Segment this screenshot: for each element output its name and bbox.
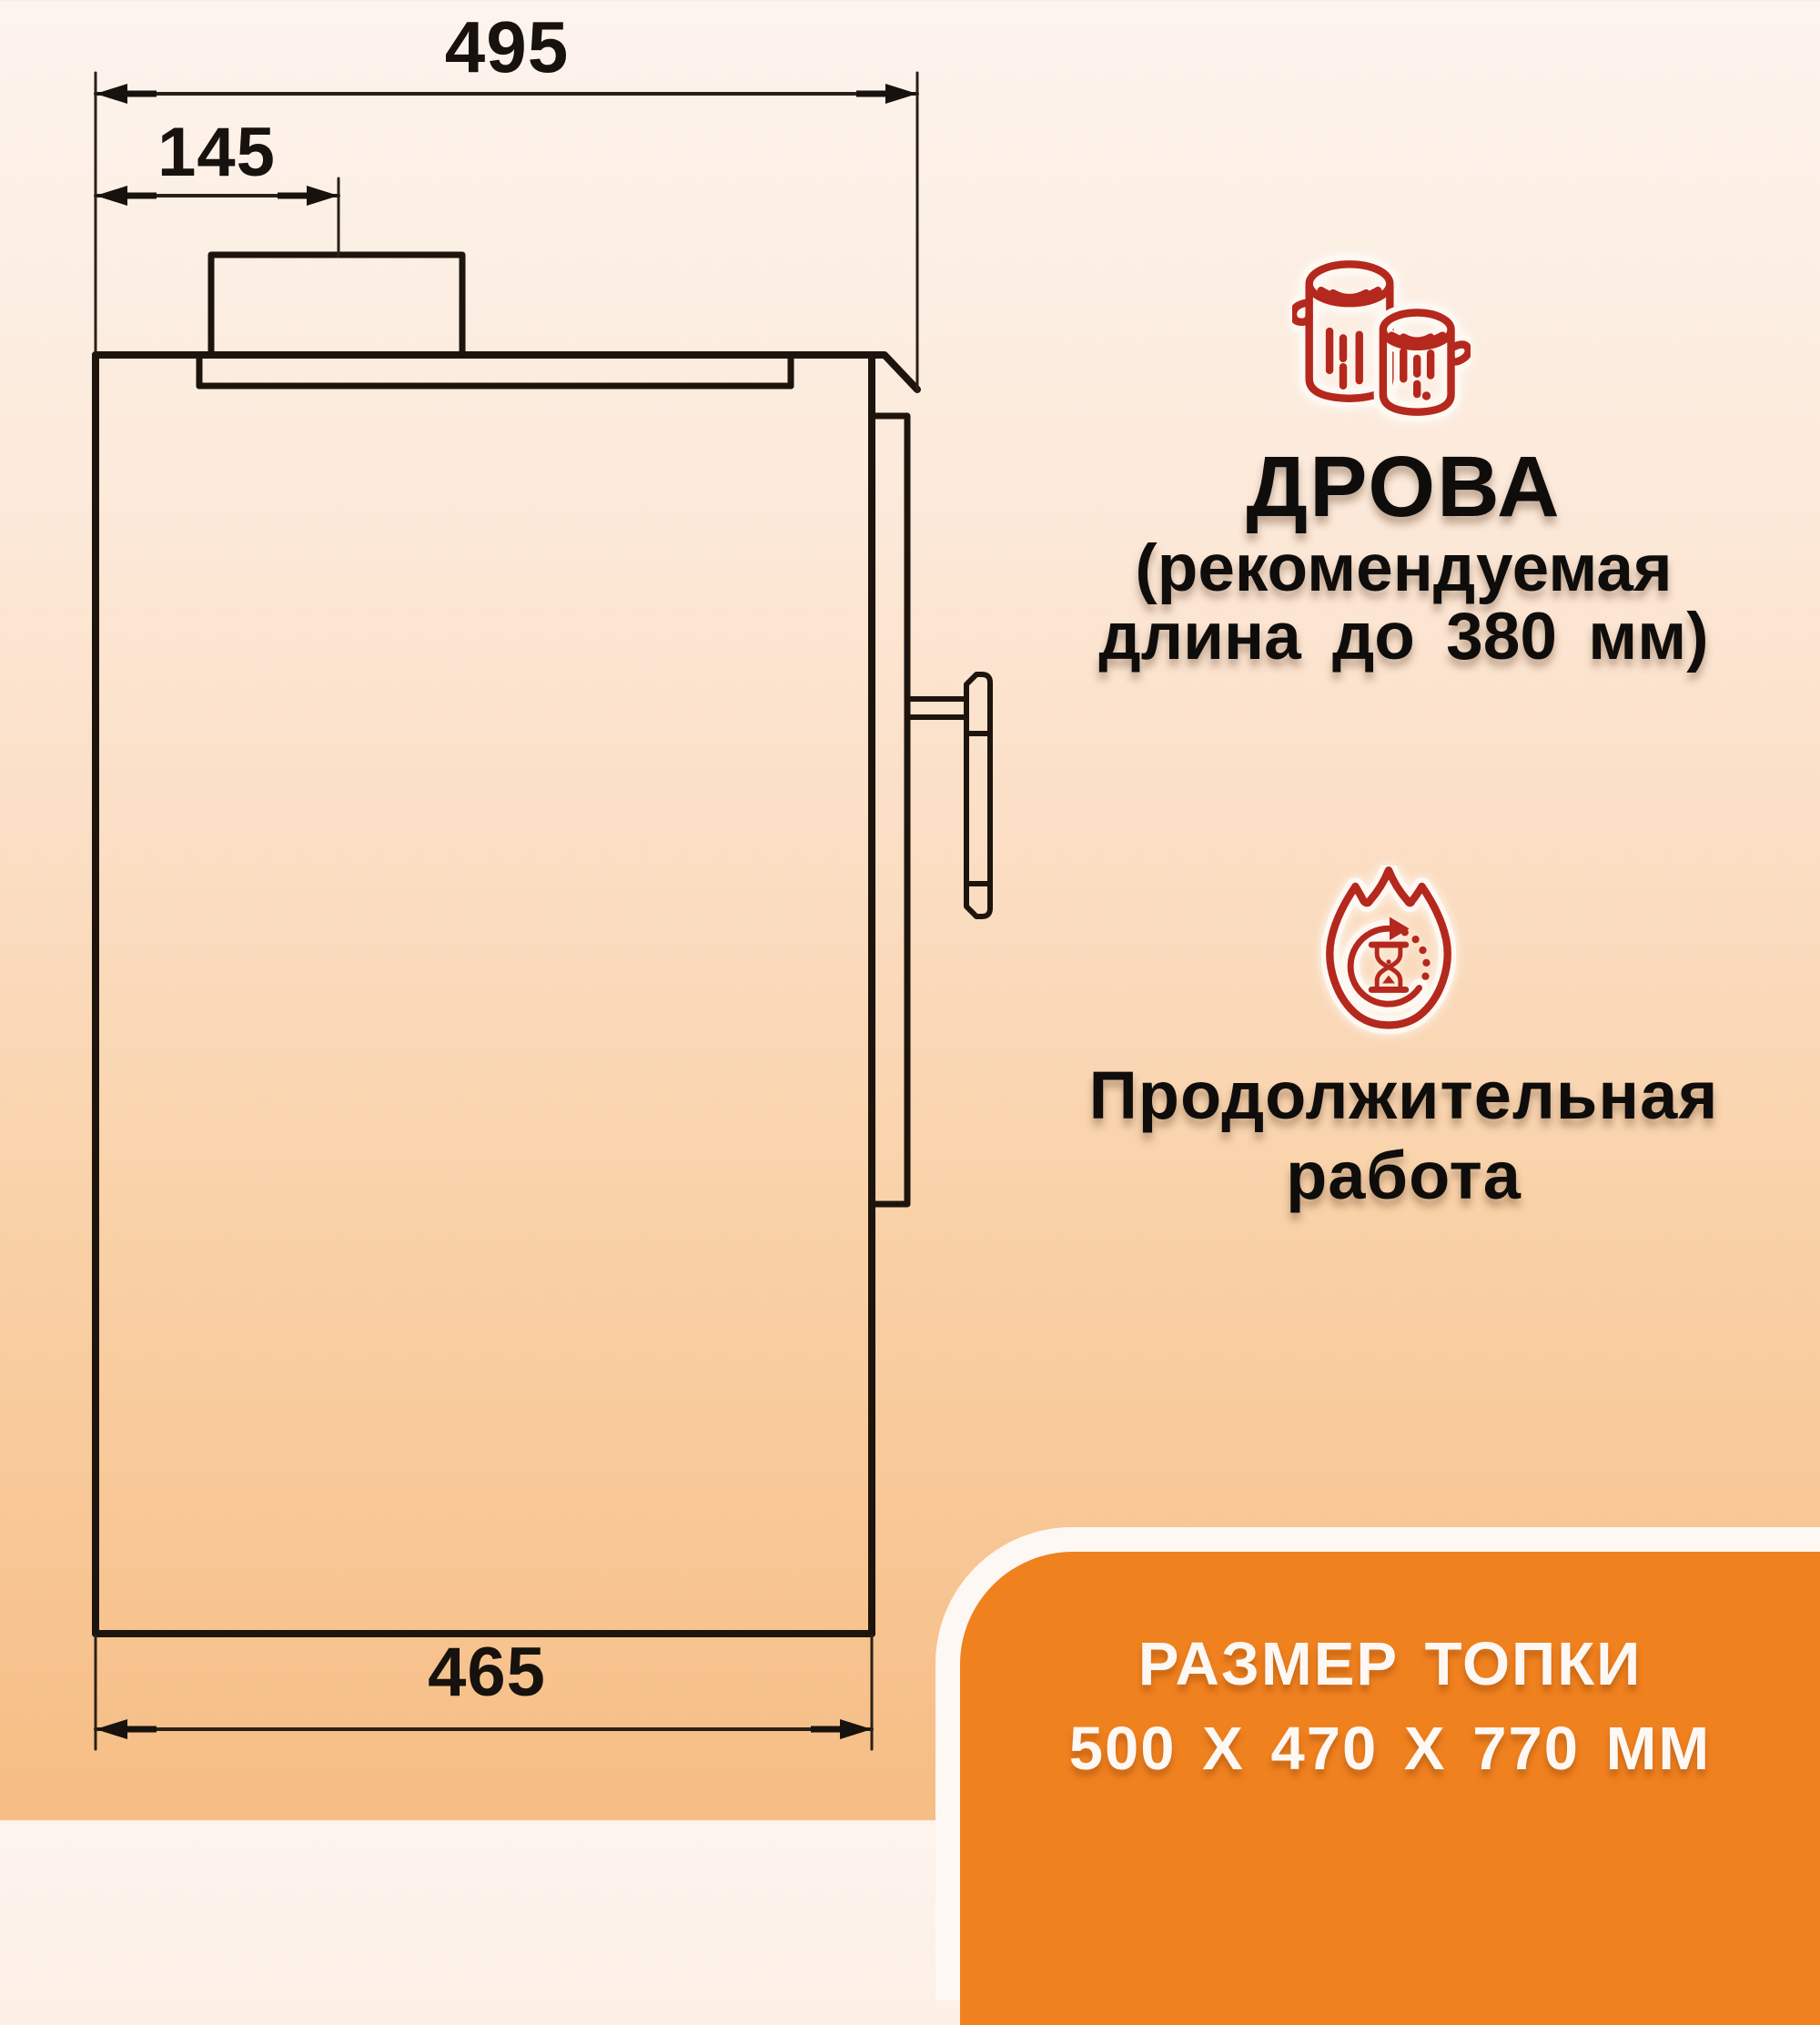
stove-body-outline <box>96 355 917 1634</box>
firewood-subtitle-line2: длина до 380 мм) <box>987 602 1820 671</box>
door-handle <box>909 674 990 916</box>
dimension-label-top-width: 495 <box>398 5 616 89</box>
fire-hourglass-icon <box>1321 866 1456 1038</box>
dimension-label-chimney-offset: 145 <box>107 113 326 192</box>
firewood-subtitle-line1: (рекомендуемая <box>987 534 1820 602</box>
top-plate-edge <box>199 357 791 386</box>
duration-text-block: Продолжительная работа <box>987 1056 1820 1216</box>
firewood-title: ДРОВА <box>987 440 1820 534</box>
duration-line2: работа <box>987 1136 1820 1216</box>
firebox-size-value: 500 X 470 X 770 ММ <box>960 1706 1820 1791</box>
chimney-stub <box>211 255 462 353</box>
stove-door <box>872 416 907 1204</box>
dimension-label-bottom-width: 465 <box>378 1633 596 1712</box>
dimension-arrows <box>96 84 917 1739</box>
logs-icon <box>1292 253 1471 423</box>
firewood-text-block: ДРОВА (рекомендуемая длина до 380 мм) <box>987 440 1820 671</box>
firebox-size-text: РАЗМЕР ТОПКИ 500 X 470 X 770 ММ <box>960 1622 1820 1791</box>
dimension-lines <box>96 94 917 1729</box>
infographic-canvas: { "drawing": { "dim_top_width": "495", "… <box>0 0 1820 1820</box>
extension-lines <box>96 73 917 1749</box>
firebox-size-title: РАЗМЕР ТОПКИ <box>960 1622 1820 1706</box>
duration-line1: Продолжительная <box>987 1056 1820 1136</box>
